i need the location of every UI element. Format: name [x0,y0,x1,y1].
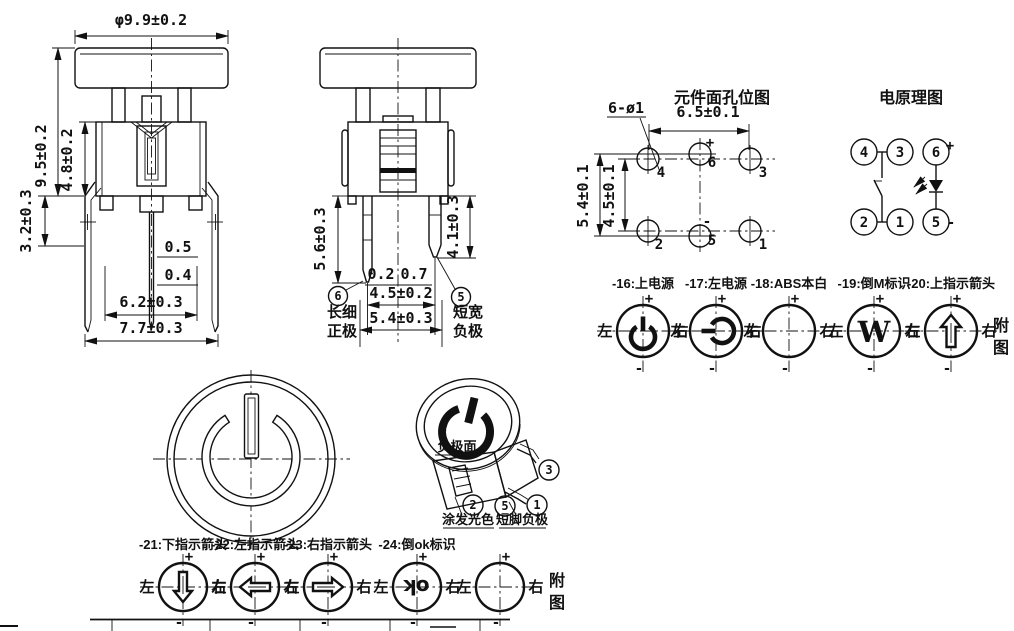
option-17-label: -17:左电源 [685,276,747,291]
negative-pin-short [429,196,441,257]
schematic-title: 电原理图 [879,88,943,107]
option-18-label: -18:ABS本白 [751,276,828,291]
left-label: 左 [138,578,154,596]
option-23-label: -23:右指示箭头 [284,537,372,552]
schematic-pin-4: 4 [860,145,868,161]
plus-mark: + [419,549,427,565]
minus-mark: - [175,615,183,631]
minus-mark: - [492,615,500,631]
minus-mark: - [247,615,255,631]
plus-mark: + [645,291,653,307]
minus-mark: - [781,361,789,377]
left-label: 左 [455,578,471,596]
dim-hole-span-v-inner: 4.5±0.1 [600,164,618,227]
left-label: 左 [372,578,388,596]
hole-label-5: 5 [708,233,716,249]
option-23-arrow-right: -23:右指示箭头 + - 左 右 [283,537,372,631]
option-16-label: -16:上电源 [612,276,674,291]
schematic-pin-6: 6 [932,145,940,161]
dim-offset-left: 0.2 [367,265,394,283]
plus-mark: + [876,291,884,307]
left-label: 左 [210,578,226,596]
dim-pin-pitch: 4.5±0.2 [369,284,432,302]
dim-hole-span-v-outer: 5.4±0.1 [574,164,592,227]
minus-mark: - [708,361,716,377]
left-label: 左 [742,322,758,340]
schematic-pin-2: 2 [860,215,868,231]
dim-outer-width: 7.7±0.3 [119,319,182,337]
short-pin-label: 短脚负极 [496,512,549,527]
option-18-abs-white: -18:ABS本白 + - 左 右 [742,276,835,377]
row2-note-tu: 图 [549,594,565,612]
iso-balloon-3: 3 [545,463,552,477]
dim-pin-width-bottom: 0.4 [164,266,191,284]
minus-mark: - [943,361,951,377]
switch-contact-symbol [874,152,882,222]
dim-pin-long: 5.6±0.3 [311,207,329,270]
plus-mark: + [953,291,961,307]
minus-mark: - [866,361,874,377]
left-label: 左 [827,322,843,340]
negative-face-label: 负极面 [437,439,476,454]
option-24-label: -24:倒ok标识 [378,537,455,552]
left-label: 左 [283,578,299,596]
iso-cap [408,369,529,481]
dim-pin-width-top: 0.5 [164,238,191,256]
iso-balloon-5: 5 [501,499,508,513]
circuit-schematic: 电原理图 4 3 6 2 1 5 + - [851,88,955,235]
iso-view: 负极面 3 2 5 1 涂发光色 短脚负极 [408,369,559,528]
balloon-6: 6 [334,289,341,303]
right-label: 右 [528,578,543,596]
left-label: 左 [669,322,685,340]
callout-negative-pin: 5 短宽 负极 [437,257,484,340]
schematic-pin-5: 5 [932,215,940,231]
option-row-1: -16:上电源 + - 左 右 -17:左电源 + - 左 右 [596,276,1009,377]
plus-mark: + [185,549,193,565]
left-clip-leg [85,182,95,332]
cap-face-view [153,370,350,549]
option-row-2: -21:下指示箭头 + - 左 右 -22:左指示箭头 + - 左 右 [138,537,565,631]
side-view: 5.6±0.3 4.1±0.3 0.2 0.7 4.5±0.2 5.4±0.3 … [311,38,484,347]
plus-mark: + [502,549,510,565]
paint-color-label: 涂发光色 [442,512,494,527]
inverted-m-icon: W [857,315,891,349]
plus-mark: + [718,291,726,307]
row1-note-tu: 图 [993,339,1009,357]
schematic-plus: + [946,138,954,154]
callout-long-thin: 长细 [327,303,357,321]
plus-mark: + [330,549,338,565]
drawing-sheet: φ9.9±0.2 9.5±0.2 4.8±0.2 3.2±0.3 0.5 0.4… [0,0,1014,631]
dim-cap-diameter: φ9.9±0.2 [115,11,187,29]
dim-pin-short: 4.1±0.3 [444,195,462,258]
hole-label-3: 3 [759,165,767,181]
row1-note-fu: 附 [993,316,1009,335]
minus-mark: - [635,361,643,377]
plus-mark: + [791,291,799,307]
hole-minus-mark: - [703,214,711,230]
dim-body-height: 4.8±0.2 [58,128,76,191]
right-clip-leg [208,182,218,332]
hole-label-1: 1 [759,237,767,253]
callout-negative: 负极 [453,322,484,340]
iso-balloon-2: 2 [469,498,476,512]
dim-hole-span-h: 6.5±0.1 [676,103,739,121]
right-label: 右 [356,578,371,596]
ok-glyph: ok [403,575,430,599]
left-label: 左 [596,322,612,340]
hole-label-6: 6 [708,155,716,171]
left-label: 左 [904,322,920,340]
schematic-pin-3: 3 [896,145,904,161]
switch-drawing-canvas: φ9.9±0.2 9.5±0.2 4.8±0.2 3.2±0.3 0.5 0.4… [0,0,1014,631]
hole-plus-mark: + [706,135,714,151]
schematic-pin-1: 1 [896,215,904,231]
dim-inner-width: 6.2±0.3 [119,293,182,311]
dim-total-height: 9.5±0.2 [32,124,50,187]
callout-positive: 正极 [327,322,358,340]
dim-offset-right: 0.7 [400,265,427,283]
minus-mark: - [409,615,417,631]
hole-position-map: 元件面孔位图 4 6 3 2 5 1 + - 6-ø1 6.5±0.1 5.4±… [574,88,775,253]
option-20-arrow-up: -20:上指示箭头 + - 左 右 [904,276,997,377]
led-symbol [914,165,943,209]
iso-balloon-1: 1 [533,498,540,512]
callout-positive-pin: 6 长细 正极 [327,281,363,340]
row2-note-fu: 附 [549,571,565,590]
minus-mark: - [320,615,328,631]
schematic-minus: - [947,215,955,231]
dim-leg-height: 3.2±0.3 [17,189,35,252]
option-20-label: -20:上指示箭头 [907,276,995,291]
hole-label-2: 2 [655,237,663,253]
plus-mark: + [257,549,265,565]
hole-size-note: 6-ø1 [608,99,644,117]
dim-body-width: 5.4±0.3 [369,309,432,327]
callout-short-wide: 短宽 [453,303,483,321]
inverted-ok-icon: ok [403,575,430,599]
option-19-label: -19:倒M标识 [838,276,911,291]
option-24-inverted-ok: -24:倒ok标识 + - 左 右 ok [372,537,460,631]
balloon-5: 5 [457,290,464,304]
front-view: φ9.9±0.2 9.5±0.2 4.8±0.2 3.2±0.3 0.5 0.4… [17,11,228,347]
